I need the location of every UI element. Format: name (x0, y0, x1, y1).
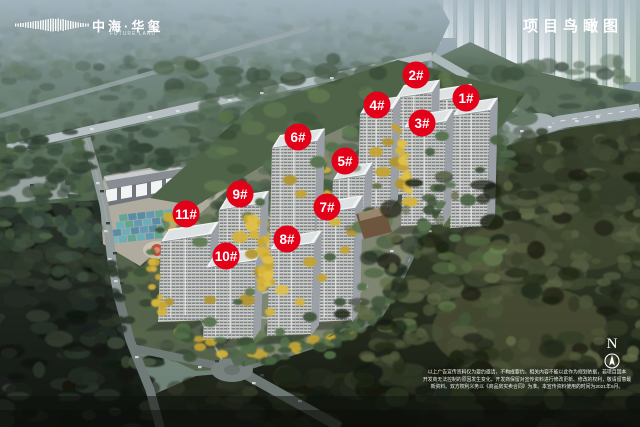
svg-text:10#: 10# (215, 249, 238, 264)
svg-text:11#: 11# (175, 207, 197, 222)
svg-text:7#: 7# (319, 200, 335, 215)
svg-text:3#: 3# (414, 116, 430, 131)
svg-text:9#: 9# (232, 187, 248, 202)
svg-text:2#: 2# (408, 68, 424, 83)
svg-text:1#: 1# (458, 91, 474, 106)
svg-text:8#: 8# (279, 232, 295, 247)
svg-text:6#: 6# (290, 130, 306, 145)
svg-text:5#: 5# (337, 154, 353, 169)
svg-text:4#: 4# (369, 98, 385, 113)
